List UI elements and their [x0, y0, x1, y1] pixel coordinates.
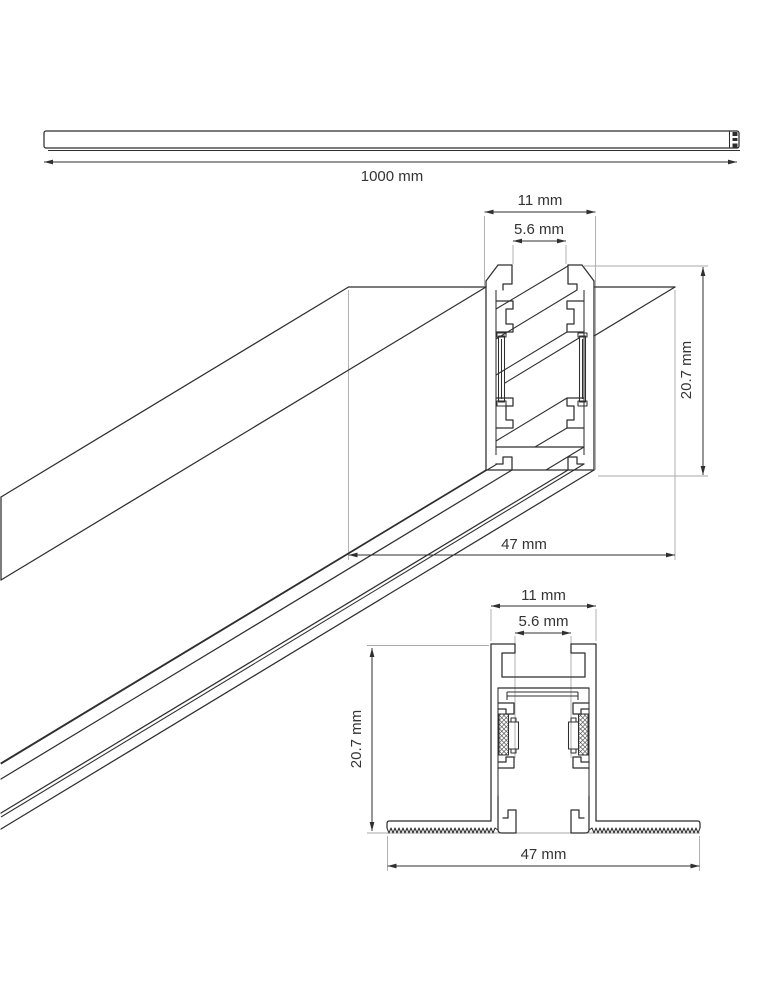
top-chamfers [486, 265, 594, 281]
arrow-left [44, 160, 53, 165]
iso-dim-slot: 5.6 mm [513, 221, 566, 243]
section-dim-slot-label: 5.6 mm [518, 613, 568, 630]
conductor-right [569, 718, 579, 753]
track-profile-drawing: 1000 mm [0, 0, 774, 1000]
upper-hook-right [573, 703, 589, 714]
upper-rib-right [567, 301, 584, 332]
magnet-hatch-left [499, 714, 509, 755]
dim-length-label: 1000 mm [361, 168, 424, 185]
iso-dim-slot-label: 5.6 mm [514, 221, 564, 238]
top-cavity [502, 644, 585, 677]
rail-body [44, 131, 739, 148]
technical-drawing-page: 1000 mm [0, 0, 774, 1000]
section-dim-height: 20.7 mm [348, 648, 374, 831]
iso-dim-width-label: 11 mm [518, 192, 563, 209]
section-dim-slot: 5.6 mm [515, 613, 571, 635]
iso-section-face [349, 265, 676, 470]
lower-hook-left [498, 757, 514, 768]
lower-hook-right [573, 757, 589, 768]
iso-extension-lines [349, 216, 709, 560]
conductor-strip-left [497, 333, 506, 406]
foot-slot-right [568, 457, 584, 470]
section-dim-width: 11 mm [491, 587, 596, 608]
section-dim-base-label: 47 mm [521, 846, 567, 863]
magnet-hatch-right [579, 714, 589, 755]
foot-right [571, 796, 589, 833]
serration-right [589, 828, 700, 833]
outer-walls [486, 281, 594, 470]
conductor-strip-right [578, 333, 587, 406]
foot-left [498, 796, 516, 833]
foot-slot-left [496, 457, 512, 470]
iso-dim-width: 11 mm [485, 192, 596, 214]
iso-dim-base-label: 47 mm [501, 536, 547, 553]
inner-walls [498, 688, 589, 796]
internal-extrusion-lines [496, 266, 584, 470]
serration-left [387, 828, 498, 833]
section-dim-width-label: 11 mm [521, 587, 566, 604]
inner-walls [496, 290, 584, 455]
dim-length: 1000 mm [44, 160, 737, 185]
section-profile [387, 644, 700, 833]
rail-extrusion-lines [1, 287, 675, 829]
section-dim-base: 47 mm [388, 846, 700, 868]
slot-lips [503, 265, 577, 290]
section-dim-height-label: 20.7 mm [348, 710, 365, 768]
section-view: 11 mm 5.6 mm 20.7 mm 47 mm [348, 587, 700, 871]
rail-endcap-detail [733, 132, 738, 148]
side-view: 1000 mm [44, 131, 740, 185]
conductor-left [509, 718, 519, 753]
iso-dim-height-label: 20.7 mm [678, 341, 695, 399]
wing-right-top [596, 821, 700, 828]
insulator-shelf [507, 692, 578, 700]
wing-left-top [387, 821, 491, 828]
upper-hook-left [498, 703, 514, 714]
upper-rib-left [496, 301, 513, 332]
arrow-right [728, 160, 737, 165]
iso-dim-height: 20.7 mm [678, 267, 705, 475]
